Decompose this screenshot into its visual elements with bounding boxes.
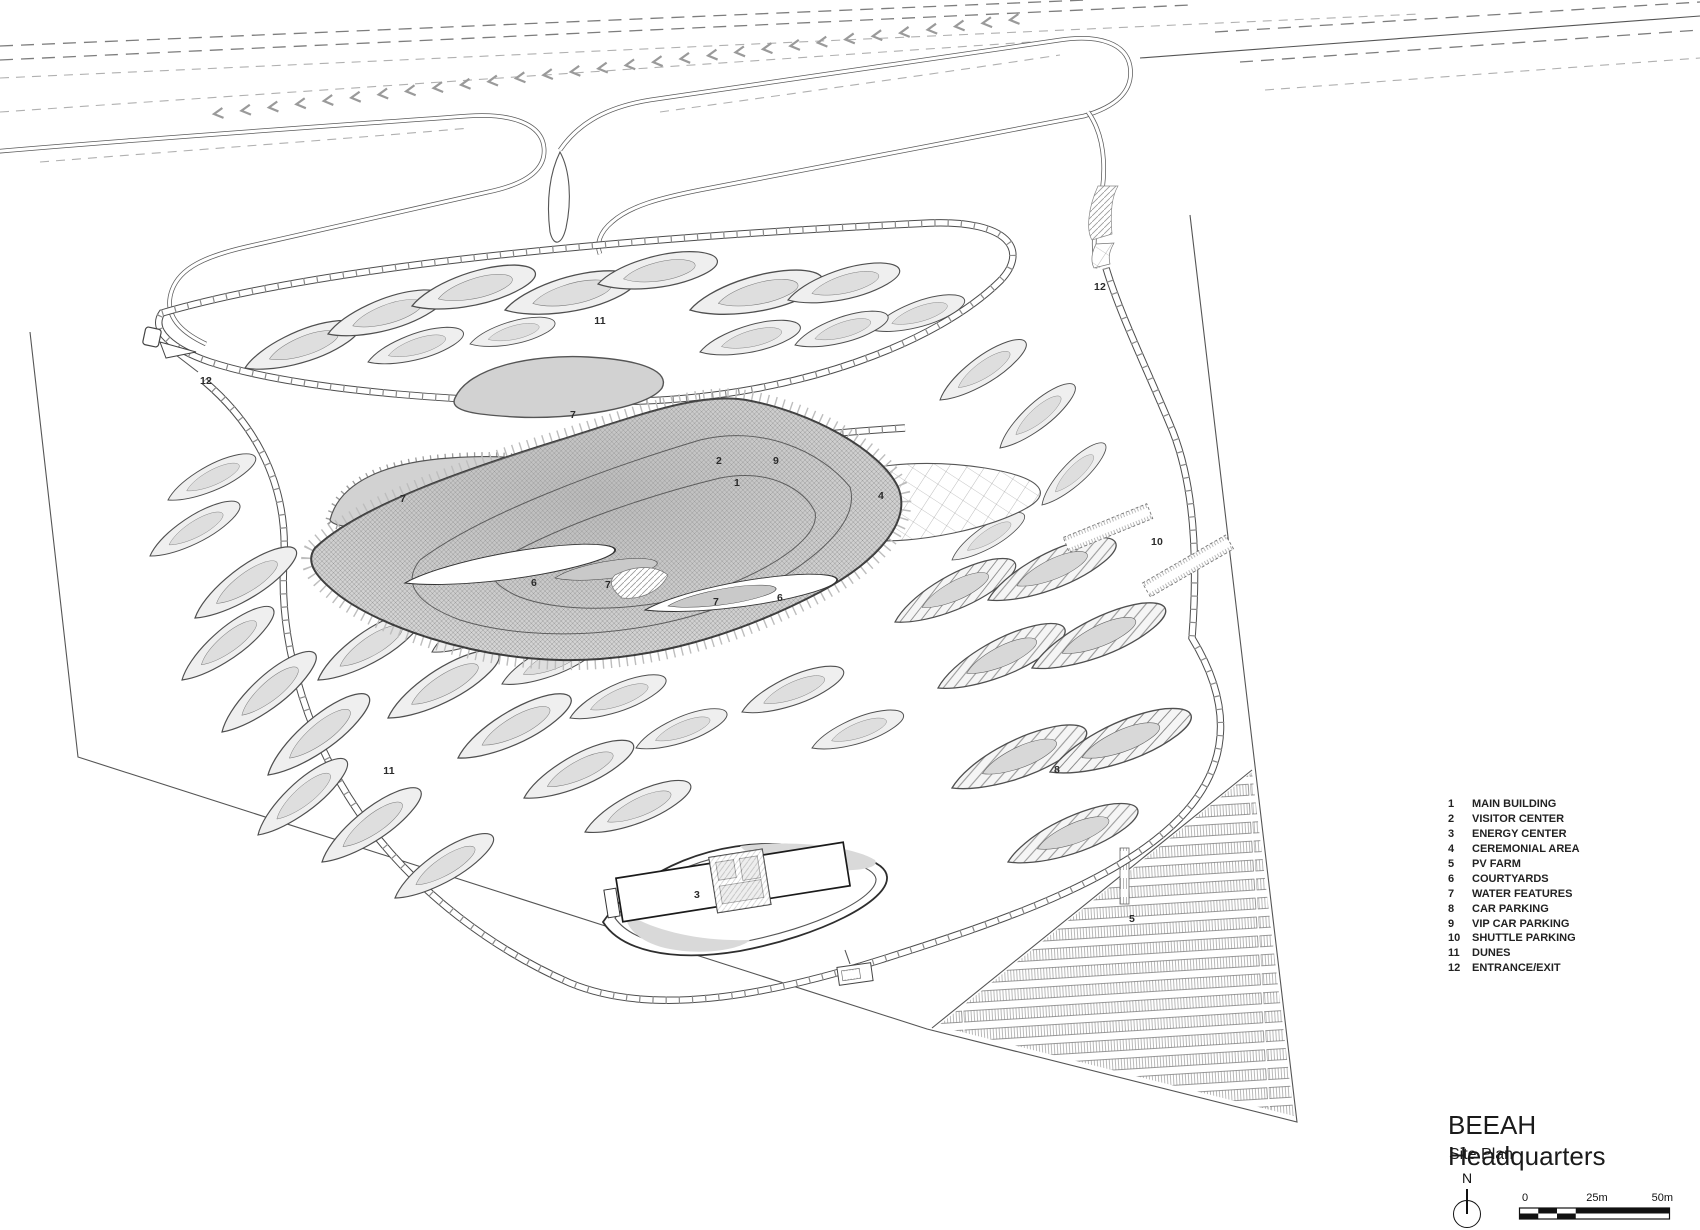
legend-label: SHUTTLE PARKING [1472,932,1576,944]
drawing-element [516,731,640,810]
plan-label-7: 7 [713,596,719,608]
legend-row-6: 6COURTYARDS [1448,871,1580,886]
legend-number: 3 [1448,828,1472,840]
legend-label: MAIN BUILDING [1472,798,1556,810]
utility-structure [837,950,873,985]
chevron-icon [296,98,306,109]
north-label: N [1462,1170,1472,1186]
chevron-icon [213,108,223,119]
legend-number: 1 [1448,798,1472,810]
north-arrow: N [1440,1170,1500,1230]
drawing-element [807,703,907,757]
legend-row-12: 12ENTRANCE/EXIT [1448,961,1580,976]
drawing-element [697,315,804,363]
legend-label: PV FARM [1472,858,1521,870]
chevron-icon [1009,14,1019,25]
plan-label-3: 3 [694,889,700,901]
drawing-element [791,305,892,355]
legend-row-5: 5PV FARM [1448,857,1580,872]
chevron-icon [845,33,855,44]
legend-number: 9 [1448,918,1472,930]
plan-label-10: 10 [1151,536,1163,548]
plan-label-7: 7 [570,409,576,421]
legend-label: COURTYARDS [1472,873,1549,885]
lane-chevron-markings [213,14,1019,119]
page: 11121272914710677681135 1MAIN BUILDING2V… [0,0,1700,1230]
chevron-icon [735,46,745,57]
chevron-icon [515,72,525,83]
legend-label: DUNES [1472,947,1511,959]
chevron-icon [653,56,663,67]
entrance-island [1092,243,1114,268]
chevron-icon [241,105,251,116]
drawing-element [1215,2,1700,32]
drawing-element [142,493,246,565]
legend: 1MAIN BUILDING2VISITOR CENTER3ENERGY CEN… [1448,797,1580,976]
legend-row-3: 3ENERGY CENTER [1448,827,1580,842]
chevron-icon [598,63,608,74]
drawing-element [1265,58,1700,90]
legend-label: WATER FEATURES [1472,888,1572,900]
chevron-icon [762,43,772,54]
chevron-icon [378,89,388,100]
legend-row-11: 11DUNES [1448,946,1580,961]
drawing-element [467,312,557,353]
chevron-icon [351,92,361,103]
legend-label: ENERGY CENTER [1472,828,1567,840]
scale-bar: 0 25m 50m [1518,1192,1688,1226]
drawing-element [931,331,1033,409]
legend-label: CAR PARKING [1472,903,1549,915]
scale-label-end: 50m [1652,1192,1673,1204]
drawing-element [1033,436,1113,512]
north-circle [1453,1200,1481,1228]
drawing-element [1240,30,1700,62]
chevron-icon [982,17,992,28]
scale-bar-graphic [1518,1207,1688,1225]
plan-label-11: 11 [594,315,606,327]
plan-label-7: 7 [605,579,611,591]
legend-row-10: 10SHUTTLE PARKING [1448,931,1580,946]
drawing-element [454,357,663,418]
chevron-icon [955,20,965,31]
drawing-element [560,38,1131,254]
energy-center [603,836,887,955]
drawing-element [449,684,578,770]
chevron-icon [790,40,800,51]
drawing-element [0,116,544,344]
plan-label-1: 1 [734,477,740,489]
drawing-element [0,116,544,344]
drawing-element [1140,16,1700,58]
plan-label-12: 12 [1094,281,1106,293]
legend-label: VIP CAR PARKING [1472,918,1569,930]
plan-label-8: 8 [1054,764,1060,776]
plan-label-6: 6 [777,592,783,604]
drawing-element [564,667,670,728]
plan-label-11: 11 [383,765,395,777]
legend-number: 11 [1448,947,1472,959]
chevron-icon [406,85,416,96]
drawing-element [841,968,860,980]
legend-number: 10 [1448,932,1472,944]
drawing-element [991,376,1083,456]
legend-number: 4 [1448,843,1472,855]
drawing-element [548,152,569,242]
chevron-icon [900,27,910,38]
legend-label: CEREMONIAL AREA [1472,843,1580,855]
entrance-gore-hatch [1089,186,1118,240]
plan-label-12: 12 [200,375,212,387]
drawing-element [142,327,161,348]
legend-row-9: 9VIP CAR PARKING [1448,916,1580,931]
plan-label-6: 6 [531,577,537,589]
drawing-element [845,950,850,964]
plan-label-7: 7 [400,493,406,505]
legend-row-1: 1MAIN BUILDING [1448,797,1580,812]
scale-label-start: 0 [1522,1192,1528,1204]
drawing-element [578,772,696,843]
legend-row-2: 2VISITOR CENTER [1448,812,1580,827]
chevron-icon [570,66,580,77]
legend-row-7: 7WATER FEATURES [1448,886,1580,901]
drawing-element [0,0,1086,46]
chevron-icon [707,50,717,61]
drawing-element [379,640,507,730]
drawing-element [0,14,1420,78]
legend-number: 8 [1448,903,1472,915]
main-building-complex [311,398,901,660]
chevron-icon [323,95,333,106]
chevron-icon [872,30,882,41]
drawing-element [736,658,849,722]
chevron-icon [680,53,690,64]
page-subtitle: Site Plan [1449,1146,1513,1164]
legend-number: 6 [1448,873,1472,885]
plan-label-4: 4 [878,490,884,502]
chevron-icon [488,76,498,87]
chevron-icon [268,101,278,112]
site-plan-drawing [0,0,1700,1230]
water-feature-north [454,357,663,418]
plan-label-5: 5 [1129,913,1135,925]
scale-label-mid: 25m [1586,1192,1607,1204]
drawing-element [311,398,901,660]
legend-number: 2 [1448,813,1472,825]
chevron-icon [817,37,827,48]
drawing-element [142,327,161,348]
plan-label-2: 2 [716,455,722,467]
legend-number: 7 [1448,888,1472,900]
drawing-element [709,849,771,913]
chevron-icon [927,24,937,35]
legend-number: 5 [1448,858,1472,870]
legend-row-4: 4CEREMONIAL AREA [1448,842,1580,857]
drawing-element [837,963,873,986]
legend-label: ENTRANCE/EXIT [1472,962,1561,974]
legend-number: 12 [1448,962,1472,974]
drawing-element [631,702,731,758]
chevron-icon [433,82,443,93]
legend-label: VISITOR CENTER [1472,813,1564,825]
plan-label-9: 9 [773,455,779,467]
drawing-element [0,40,1060,112]
legend-row-8: 8CAR PARKING [1448,901,1580,916]
drawing-element [162,446,261,509]
